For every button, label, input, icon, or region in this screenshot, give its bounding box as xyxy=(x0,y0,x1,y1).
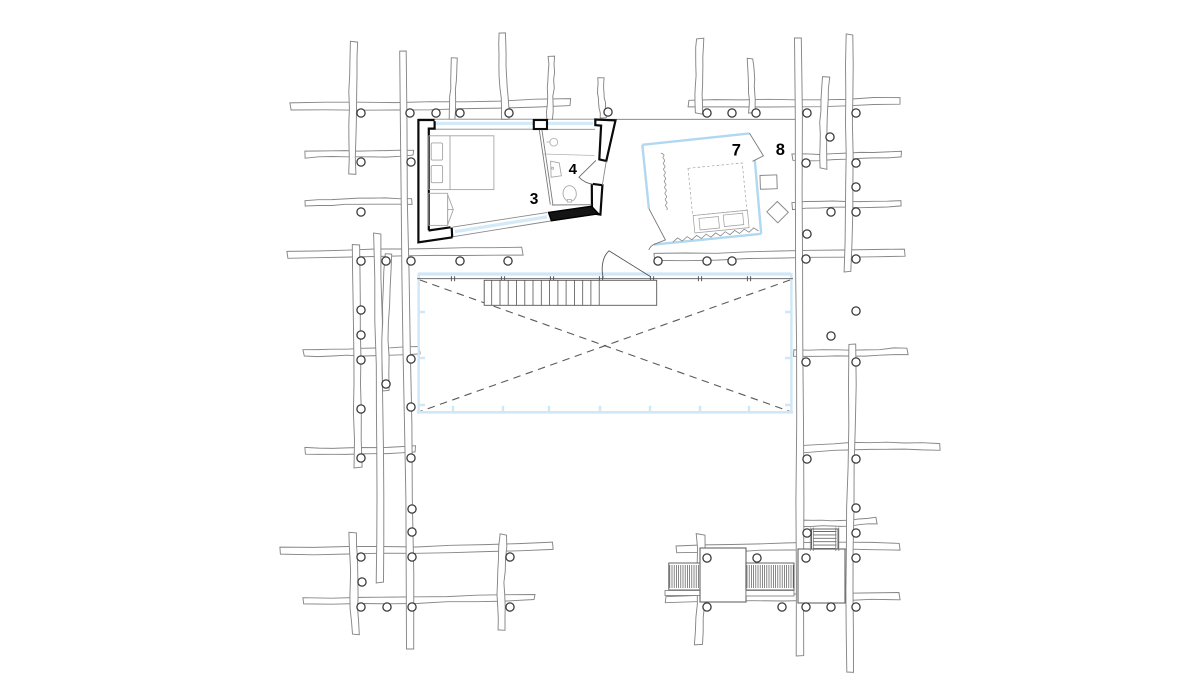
svg-text:7: 7 xyxy=(732,142,741,160)
svg-text:4: 4 xyxy=(569,161,578,178)
svg-text:8: 8 xyxy=(776,141,785,159)
svg-text:3: 3 xyxy=(530,191,539,208)
